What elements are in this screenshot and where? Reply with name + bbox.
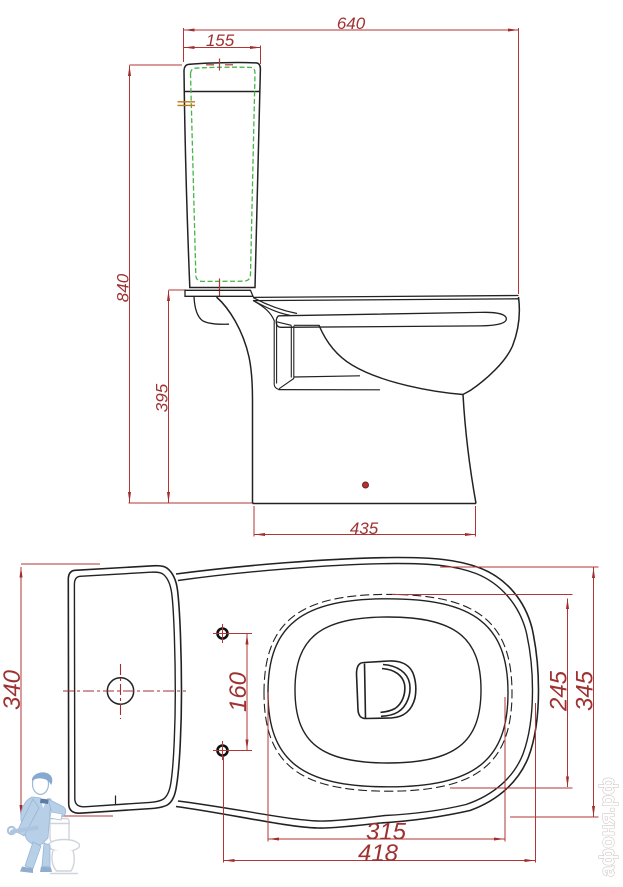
svg-text:245: 245	[546, 670, 573, 712]
svg-text:840: 840	[114, 273, 133, 302]
svg-text:418: 418	[358, 840, 399, 867]
svg-text:435: 435	[350, 519, 379, 538]
svg-text:395: 395	[153, 383, 172, 412]
svg-text:афоня.рф: афоня.рф	[597, 777, 619, 877]
svg-text:160: 160	[225, 671, 252, 712]
svg-text:640: 640	[337, 14, 366, 33]
svg-text:340: 340	[0, 669, 26, 710]
svg-text:155: 155	[206, 31, 235, 50]
svg-text:345: 345	[572, 670, 599, 711]
